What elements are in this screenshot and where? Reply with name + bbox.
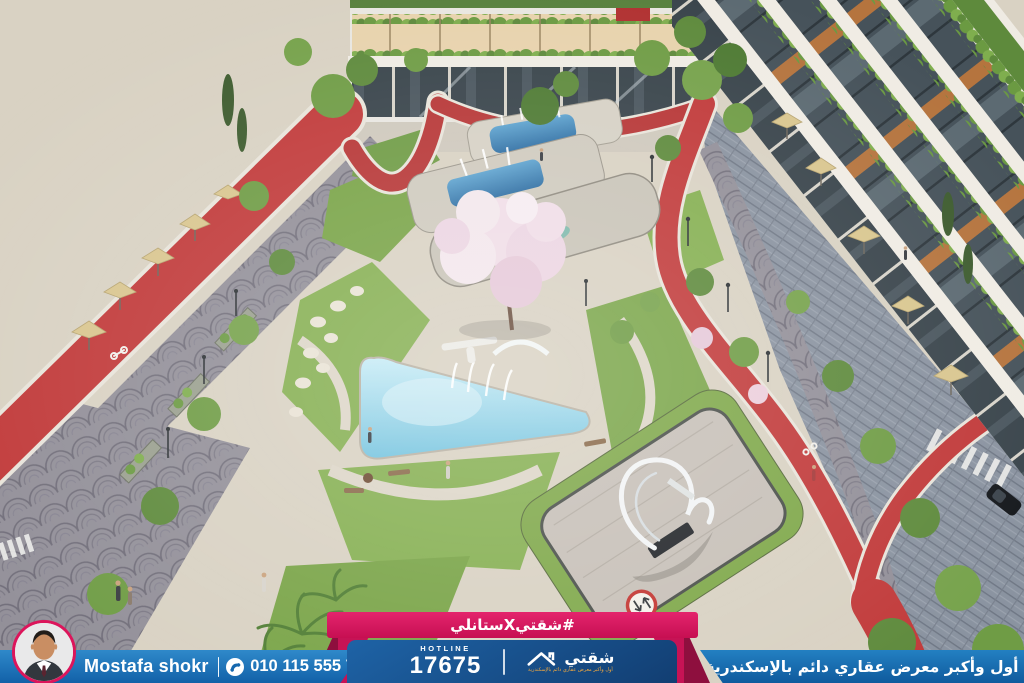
slogan-text: أول وأكبر معرض عقاري دائم بالإسكندرية [706,658,1019,676]
hashtag-text: #شقتيXستانلي [450,616,574,634]
advertisement-frame: Mostafa shokr 010 115 555 76 أول وأكبر م… [0,0,1024,683]
compound-aerial-render [0,0,1024,683]
sunlight-haze [0,0,1024,683]
brand-name: شقتي [564,650,614,666]
hotline-block: HOTLINE 17675 [410,645,482,678]
agent-avatar [12,620,76,683]
slogan-bar: أول وأكبر معرض عقاري دائم بالإسكندرية [700,650,1024,683]
hotline-number: 17675 [410,654,482,678]
phone-icon [226,658,244,676]
hashtag-ribbon: #شقتيXستانلي [327,612,698,638]
agent-portrait [15,623,73,681]
brand-tagline: أول وأكبر معرض عقاري دائم بالإسكندرية [526,668,614,673]
divider [218,657,219,677]
hotline-panel: HOTLINE 17675 شقتي أول وأكبر معرض عقاري … [347,640,677,683]
divider [503,649,505,675]
house-icon [526,651,560,666]
agent-name: Mostafa shokr [84,656,209,677]
brand-logo: شقتي أول وأكبر معرض عقاري دائم بالإسكندر… [526,650,614,673]
